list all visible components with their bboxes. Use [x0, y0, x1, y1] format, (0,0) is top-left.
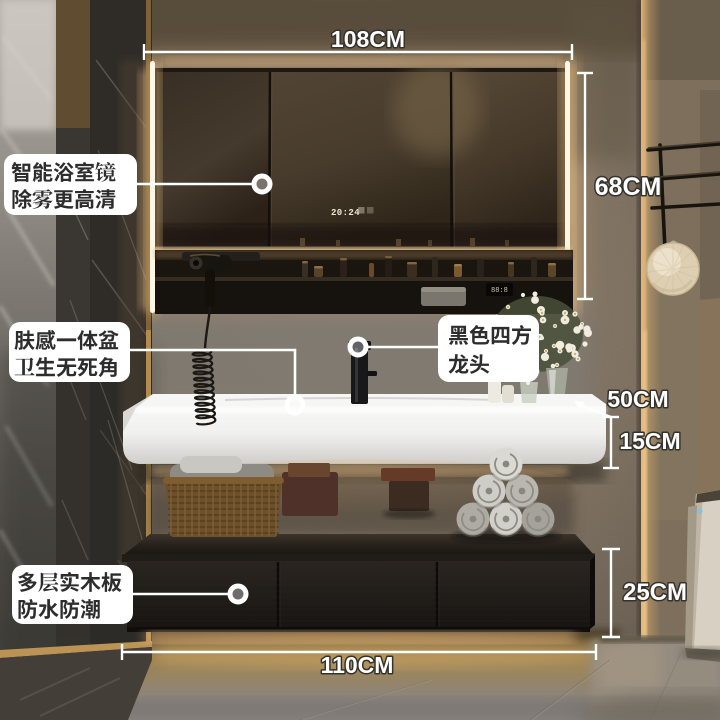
svg-text:50CM: 50CM [607, 386, 668, 412]
svg-text:15CM: 15CM [619, 428, 680, 454]
svg-text:20:24: 20:24 [331, 208, 360, 218]
svg-text:68CM: 68CM [595, 173, 662, 201]
svg-text:88:8: 88:8 [491, 287, 508, 295]
svg-text:110CM: 110CM [321, 652, 394, 678]
svg-text:108CM: 108CM [331, 26, 405, 52]
svg-text:25CM: 25CM [623, 579, 687, 606]
